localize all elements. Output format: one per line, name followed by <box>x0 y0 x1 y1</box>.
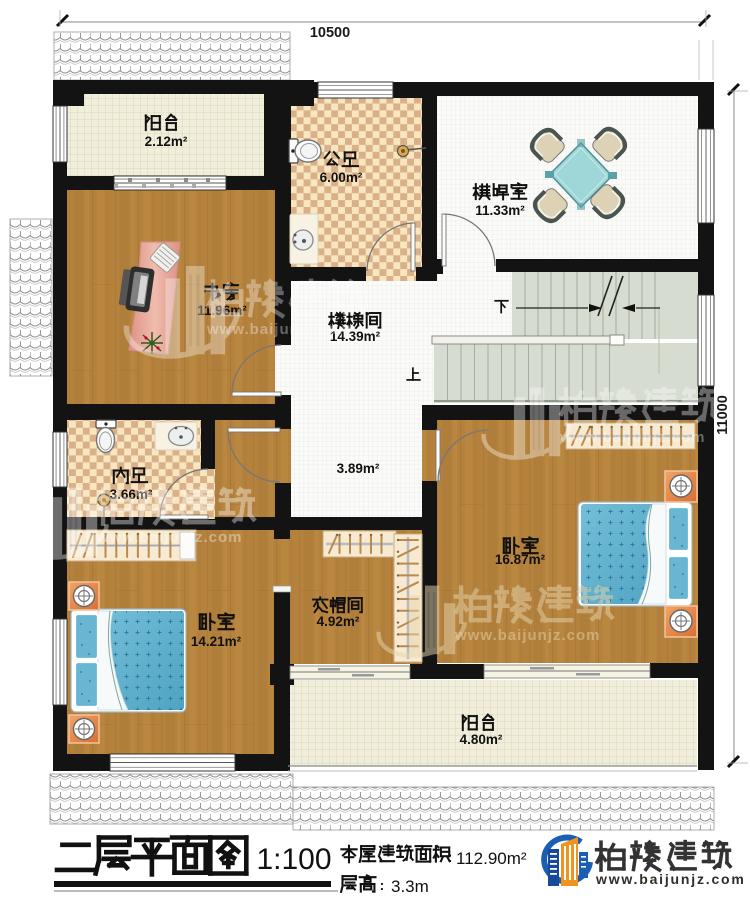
svg-text:4.80m²: 4.80m² <box>460 732 503 747</box>
svg-text:www.baijunjz.com: www.baijunjz.com <box>559 429 705 446</box>
svg-text:2.12m²: 2.12m² <box>145 134 188 149</box>
svg-text:1:100: 1:100 <box>256 843 331 876</box>
svg-text:11.33m²: 11.33m² <box>475 203 525 218</box>
svg-text:4.92m²: 4.92m² <box>317 614 360 629</box>
svg-text:10500: 10500 <box>310 25 350 41</box>
svg-text::: : <box>380 877 385 893</box>
svg-text:3.3m: 3.3m <box>391 877 429 896</box>
svg-text:6.00m²: 6.00m² <box>320 170 363 185</box>
svg-text:www.baijunjz.com: www.baijunjz.com <box>96 529 242 546</box>
svg-text:16.87m²: 16.87m² <box>495 552 546 567</box>
svg-text::: : <box>448 849 453 866</box>
svg-text:www.baijunjz.com: www.baijunjz.com <box>595 871 746 887</box>
svg-text:3.89m²: 3.89m² <box>337 461 380 476</box>
svg-text:14.21m²: 14.21m² <box>191 634 242 649</box>
svg-text:www.baijunjz.com: www.baijunjz.com <box>454 627 600 644</box>
svg-text:www.baijunjz.com: www.baijunjz.com <box>206 321 352 338</box>
svg-text:112.90m²: 112.90m² <box>456 849 527 868</box>
